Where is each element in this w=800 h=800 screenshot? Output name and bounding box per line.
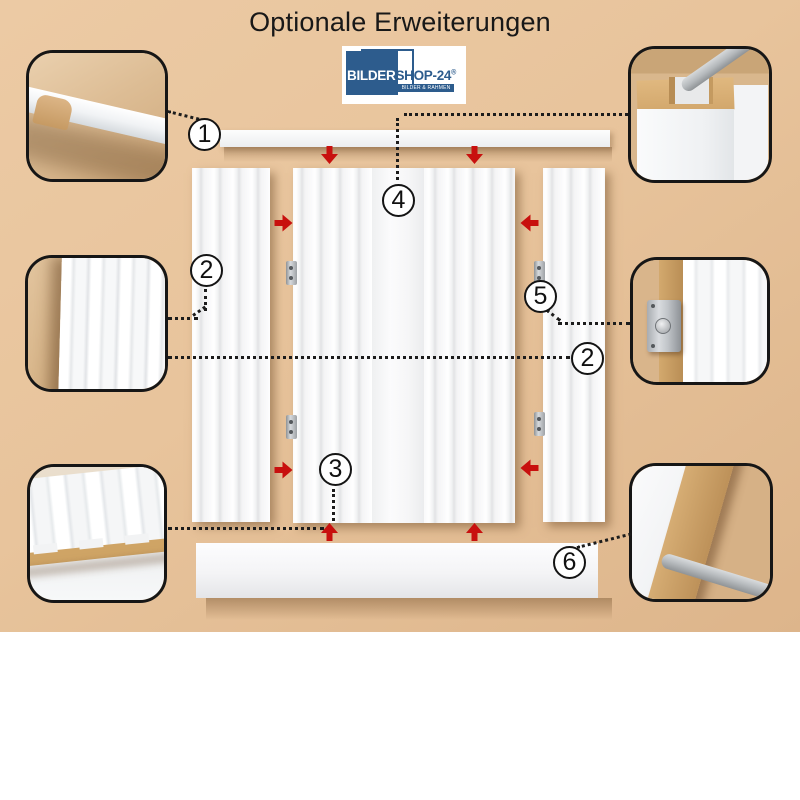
arrow-down-icon [466, 146, 483, 164]
arrow-right-icon [275, 215, 293, 232]
dotted-leader-line [168, 317, 198, 320]
dotted-leader-line [577, 532, 632, 548]
dotted-leader-line [332, 489, 335, 521]
dotted-leader-line [404, 113, 628, 116]
skirting-board [196, 543, 598, 598]
arrow-down-icon [321, 146, 338, 164]
panel-slat-tab [33, 543, 58, 554]
callout-1: 1 [188, 118, 221, 151]
arrow-up-icon [466, 523, 483, 541]
cover-strip-shadow [224, 147, 612, 162]
detail-photo-fussleiste [629, 463, 773, 602]
panel-front [683, 260, 770, 382]
skirting-board-shadow [206, 598, 612, 620]
detail-photo-endleiste [25, 255, 168, 392]
dotted-leader-line [558, 322, 630, 325]
claw-bracket-icon [286, 415, 297, 439]
registered-trademark-icon: ® [451, 70, 456, 77]
dotted-leader-line [396, 118, 399, 180]
product-infographic: Optionale Erweiterungen BILDERSHOP-24® B… [0, 0, 800, 800]
detail-photo-wandpaneel-profil [27, 464, 167, 603]
detail-photo-kralle [630, 257, 770, 385]
end-strip-left [192, 168, 270, 522]
panel-front [637, 109, 734, 183]
arrow-left-icon [521, 215, 539, 232]
arrow-up-icon [321, 523, 338, 541]
screw-icon [655, 318, 671, 334]
callout-2-right: 2 [571, 342, 604, 375]
callout-3: 3 [319, 453, 352, 486]
panel-slat-tab [124, 533, 149, 544]
logo-text-right: SHOP-24 [395, 68, 451, 83]
logo-tagline: BILDER & RAHMEN [398, 84, 454, 92]
cable-channel-cover-band [372, 168, 424, 523]
callout-4: 4 [382, 184, 415, 217]
cover-strip-top [220, 130, 610, 147]
callout-5: 5 [524, 280, 557, 313]
legend: 1 Abdeckleiste (für oberen Abschluss) 2 … [0, 632, 800, 800]
diagram-scene: Optionale Erweiterungen BILDERSHOP-24® B… [0, 0, 800, 632]
callout-2-left: 2 [190, 254, 223, 287]
claw-bracket-icon [534, 412, 545, 436]
dotted-leader-line [168, 356, 570, 359]
callout-6: 6 [553, 546, 586, 579]
dotted-leader-line [168, 527, 324, 530]
logo-wordmark: BILDERSHOP-24® [347, 68, 456, 83]
detail-photo-kabelkanal [628, 46, 772, 183]
detail-photo-abdeckleiste [26, 50, 168, 182]
arrow-right-icon [275, 462, 293, 479]
panel-slat-tab [79, 538, 104, 549]
page-title: Optionale Erweiterungen [0, 7, 800, 38]
logo-text-left: BILDER [347, 68, 395, 83]
claw-bracket-icon [286, 261, 297, 285]
arrow-left-icon [521, 460, 539, 477]
brand-logo: BILDERSHOP-24® BILDER & RAHMEN [342, 46, 466, 104]
adjacent-panel-edge [732, 85, 768, 183]
end-strip-block [58, 255, 168, 392]
